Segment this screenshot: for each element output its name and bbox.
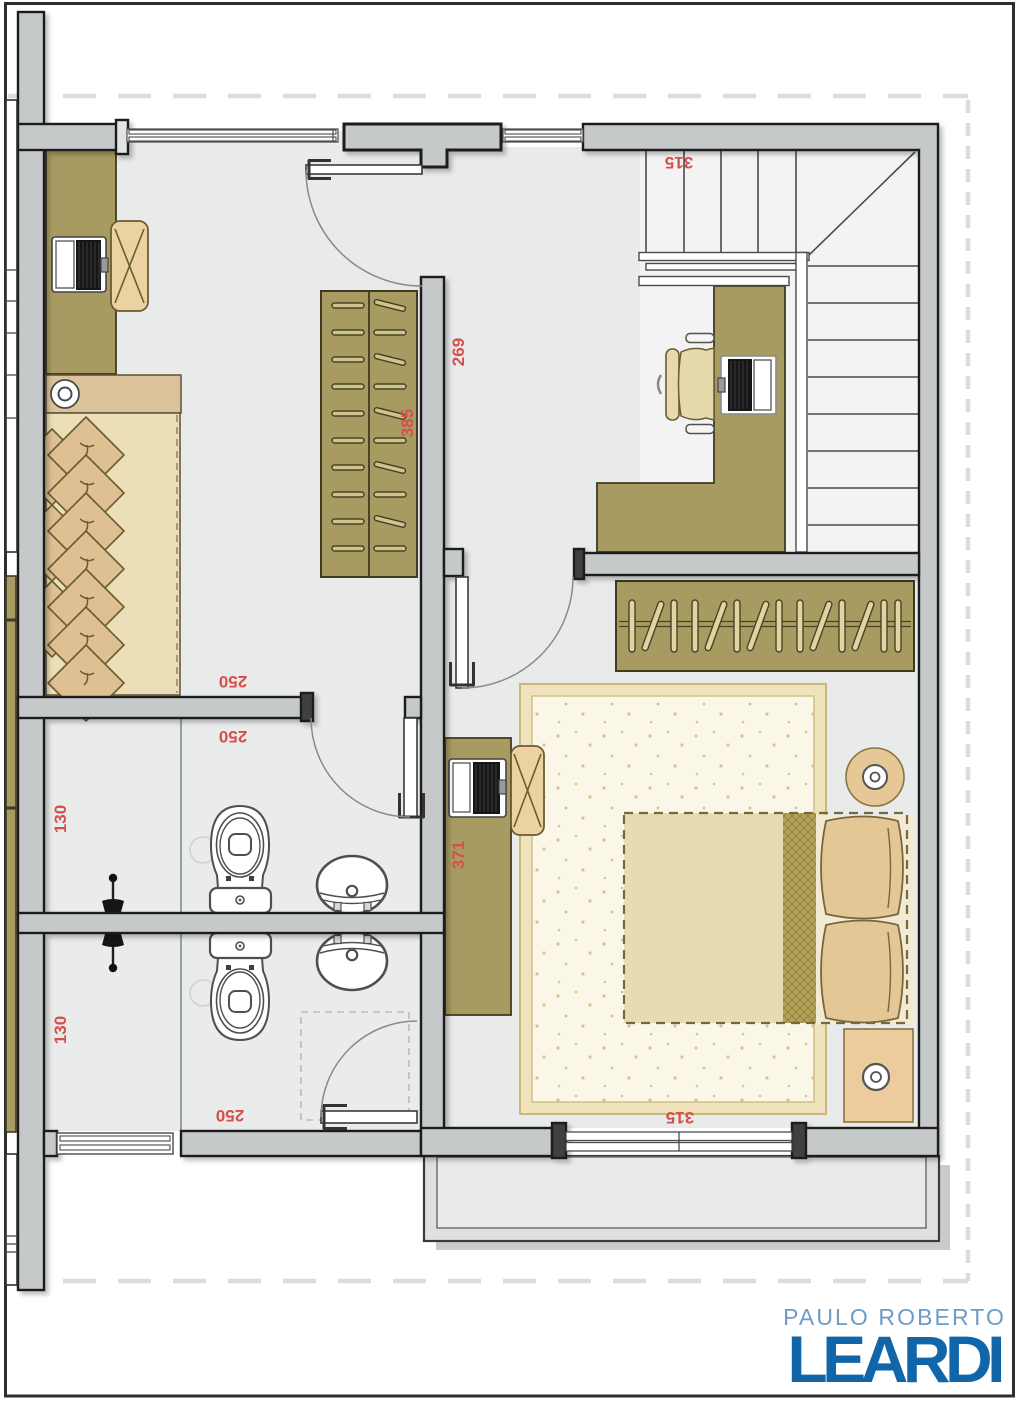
svg-text:250: 250 — [216, 1106, 244, 1125]
svg-text:371: 371 — [449, 841, 468, 869]
svg-text:250: 250 — [219, 727, 247, 746]
svg-text:130: 130 — [51, 805, 70, 833]
svg-text:LEARDI: LEARDI — [787, 1322, 1001, 1396]
svg-text:269: 269 — [449, 338, 468, 366]
svg-text:315: 315 — [666, 1108, 694, 1127]
svg-text:315: 315 — [665, 153, 693, 172]
svg-text:250: 250 — [219, 672, 247, 691]
svg-text:385: 385 — [398, 409, 417, 437]
svg-text:130: 130 — [51, 1016, 70, 1044]
